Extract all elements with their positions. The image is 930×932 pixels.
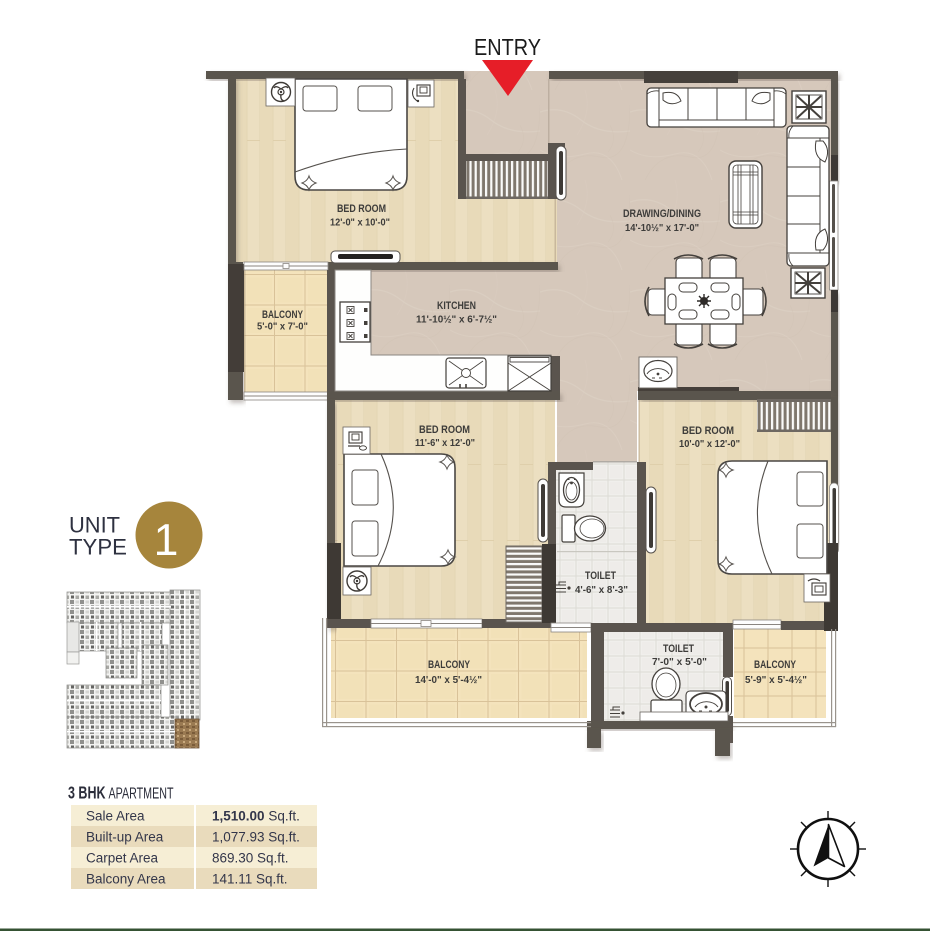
svg-text:10'-0" x 12'-0": 10'-0" x 12'-0" <box>679 438 740 450</box>
svg-text:KITCHEN: KITCHEN <box>437 300 476 312</box>
svg-text:BED ROOM: BED ROOM <box>337 203 386 215</box>
svg-text:Carpet Area: Carpet Area <box>86 851 159 866</box>
svg-text:5'-9" x 5'-4½": 5'-9" x 5'-4½" <box>745 674 807 686</box>
svg-text:BALCONY: BALCONY <box>428 659 471 671</box>
svg-text:5'-0" x 7'-0": 5'-0" x 7'-0" <box>257 321 308 333</box>
svg-text:11'-10½" x 6'-7½": 11'-10½" x 6'-7½" <box>416 314 497 326</box>
svg-text:141.11 Sq.ft.: 141.11 Sq.ft. <box>212 872 288 887</box>
svg-text:BALCONY: BALCONY <box>754 659 797 671</box>
svg-text:3 BHK: 3 BHK <box>68 783 106 803</box>
svg-text:APARTMENT: APARTMENT <box>109 786 174 803</box>
svg-text:14'-0" x 5'-4½": 14'-0" x 5'-4½" <box>415 674 482 686</box>
svg-text:1,510.00 Sq.ft.: 1,510.00 Sq.ft. <box>212 809 300 824</box>
svg-text:Balcony Area: Balcony Area <box>86 872 166 887</box>
svg-text:Sale Area: Sale Area <box>86 809 145 824</box>
svg-text:7'-0" x 5'-0": 7'-0" x 5'-0" <box>652 656 707 668</box>
svg-text:14'-10½" x 17'-0": 14'-10½" x 17'-0" <box>625 222 699 234</box>
svg-text:DRAWING/DINING: DRAWING/DINING <box>623 208 701 220</box>
svg-text:TYPE: TYPE <box>69 535 127 560</box>
svg-text:TOILET: TOILET <box>585 570 616 582</box>
svg-text:Built-up Area: Built-up Area <box>86 830 164 845</box>
svg-text:BALCONY: BALCONY <box>262 309 303 321</box>
svg-text:12'-0" x 10'-0": 12'-0" x 10'-0" <box>330 217 390 229</box>
svg-text:ENTRY: ENTRY <box>474 34 541 60</box>
svg-text:TOILET: TOILET <box>663 643 694 655</box>
svg-text:869.30 Sq.ft.: 869.30 Sq.ft. <box>212 851 289 866</box>
svg-text:11'-6" x 12'-0": 11'-6" x 12'-0" <box>415 437 475 449</box>
svg-text:1: 1 <box>154 516 179 565</box>
svg-text:BED ROOM: BED ROOM <box>682 425 734 437</box>
svg-text:1,077.93 Sq.ft.: 1,077.93 Sq.ft. <box>212 830 300 845</box>
svg-text:4'-6" x 8'-3": 4'-6" x 8'-3" <box>575 584 628 596</box>
svg-text:BED ROOM: BED ROOM <box>419 424 470 436</box>
